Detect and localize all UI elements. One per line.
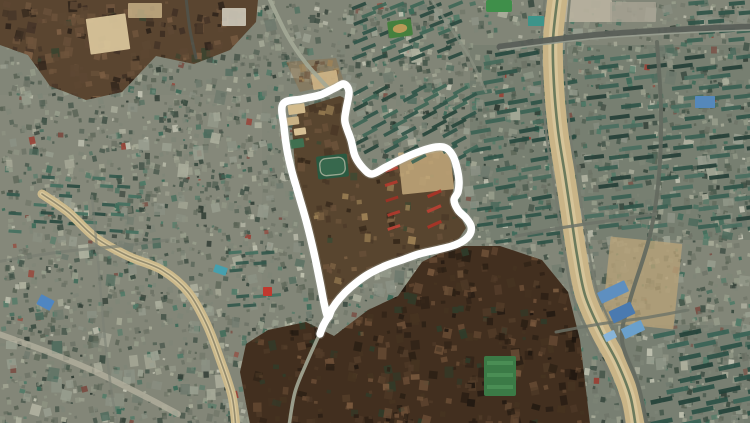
rail-yard-east [610, 2, 656, 22]
blue-roof-northeast [695, 96, 715, 108]
sports-field-site [316, 153, 349, 179]
satellite-map [0, 0, 750, 423]
sand-clearing-hills [86, 13, 131, 54]
satellite-map-image [0, 0, 750, 423]
sports-field-southeast [484, 356, 516, 396]
teal-roof-north [528, 16, 544, 26]
sports-field-north [387, 18, 413, 38]
red-roof-cluster-west [263, 287, 272, 296]
sports-field-northeast [486, 0, 512, 12]
tan-block-north [128, 3, 162, 18]
pale-roof-north [222, 8, 246, 26]
